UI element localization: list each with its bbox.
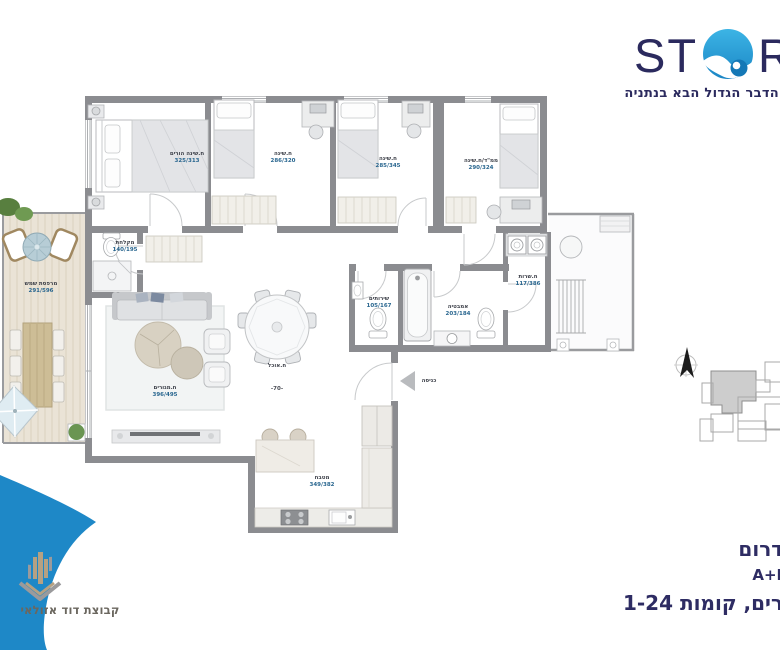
room-label-mamad: ממ"ד/ח.שינה 290/324	[464, 158, 498, 172]
brand-logo: ST R	[634, 28, 780, 82]
brand-tagline: הדבר הגדול הבא בנתניה	[624, 86, 779, 101]
developer-logo: קבוצת דוד אזולאי	[12, 551, 128, 617]
room-label-service-room: ח.שרות 117/386	[516, 274, 541, 288]
key-plan	[700, 362, 780, 441]
room-label-balcony: מרפסת שמש 291/596	[25, 281, 58, 295]
room-label-ensuite: מקלחת 140/195	[113, 240, 138, 254]
dining-set	[238, 289, 316, 364]
round-table	[23, 233, 51, 261]
north-arrow-icon	[674, 347, 698, 378]
kitchen-fixtures	[255, 406, 392, 527]
brand-letters-st: ST	[634, 32, 698, 79]
entry-arrow-icon	[400, 371, 415, 391]
unit-orientation-text: דרום	[738, 537, 780, 561]
laundry-appliances	[506, 234, 547, 256]
room-label-bedroom3: ח.שינה 285/345	[376, 156, 401, 170]
unit-floors-text: רים, קומות 1-24	[623, 591, 780, 615]
unit-wing-text: A+B	[752, 566, 780, 584]
room-label-dining: ח.אוכל	[268, 363, 286, 370]
brand-wave-icon	[701, 28, 755, 82]
room-label-living-room: ח.מגורים 396/495	[153, 385, 178, 399]
room-label-entrance: כניסה	[422, 378, 437, 385]
room-label-toilets: שירותים 105/167	[367, 296, 392, 310]
room-label-bathroom: אמבטיה 203/184	[446, 304, 471, 318]
developer-name: קבוצת דוד אזולאי	[12, 603, 128, 617]
bedroom2-furniture	[214, 100, 334, 178]
room-label-master-bedroom: ח.שינה הורים 325/313	[170, 151, 204, 165]
floorplan-page: ח.שינה הורים 325/313 ח.שינה 286/320 ח.שי…	[0, 0, 780, 650]
service-balcony	[548, 214, 634, 351]
developer-building-icon	[12, 551, 68, 601]
dining-dimension-mark: -70-	[271, 386, 283, 392]
room-label-bedroom2: ח.שינה 286/320	[271, 151, 296, 165]
brand-letter-r: R	[758, 32, 780, 79]
living-furniture	[106, 292, 230, 443]
room-label-kitchen: מטבח 349/382	[310, 475, 335, 489]
